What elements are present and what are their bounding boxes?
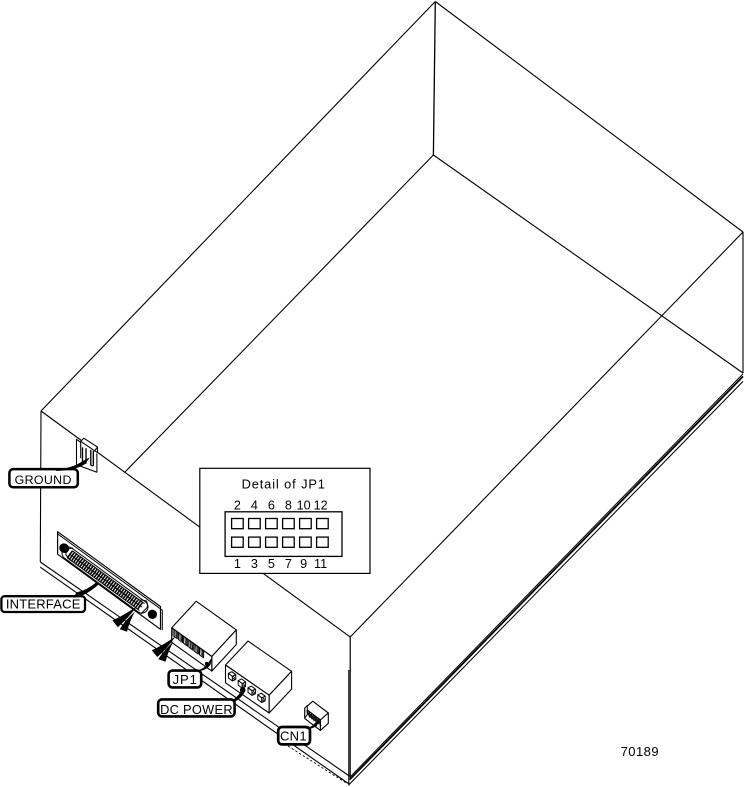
- svg-text:1: 1: [234, 557, 241, 571]
- svg-text:4: 4: [251, 498, 258, 512]
- svg-text:DC POWER: DC POWER: [160, 702, 233, 717]
- svg-text:8: 8: [285, 498, 292, 512]
- svg-text:Detail of JP1: Detail of JP1: [242, 476, 326, 491]
- svg-text:9: 9: [300, 557, 307, 571]
- svg-text:GROUND: GROUND: [15, 473, 72, 487]
- svg-text:3: 3: [251, 557, 258, 571]
- svg-text:11: 11: [314, 557, 327, 571]
- svg-text:10: 10: [297, 498, 311, 512]
- svg-text:CN1: CN1: [280, 729, 307, 744]
- svg-text:INTERFACE: INTERFACE: [6, 597, 81, 612]
- svg-text:6: 6: [268, 498, 275, 512]
- svg-text:JP1: JP1: [173, 672, 198, 687]
- svg-text:7: 7: [285, 557, 292, 571]
- svg-text:5: 5: [268, 557, 275, 571]
- svg-text:70189: 70189: [621, 744, 659, 759]
- svg-text:2: 2: [234, 498, 241, 512]
- svg-text:12: 12: [314, 498, 328, 512]
